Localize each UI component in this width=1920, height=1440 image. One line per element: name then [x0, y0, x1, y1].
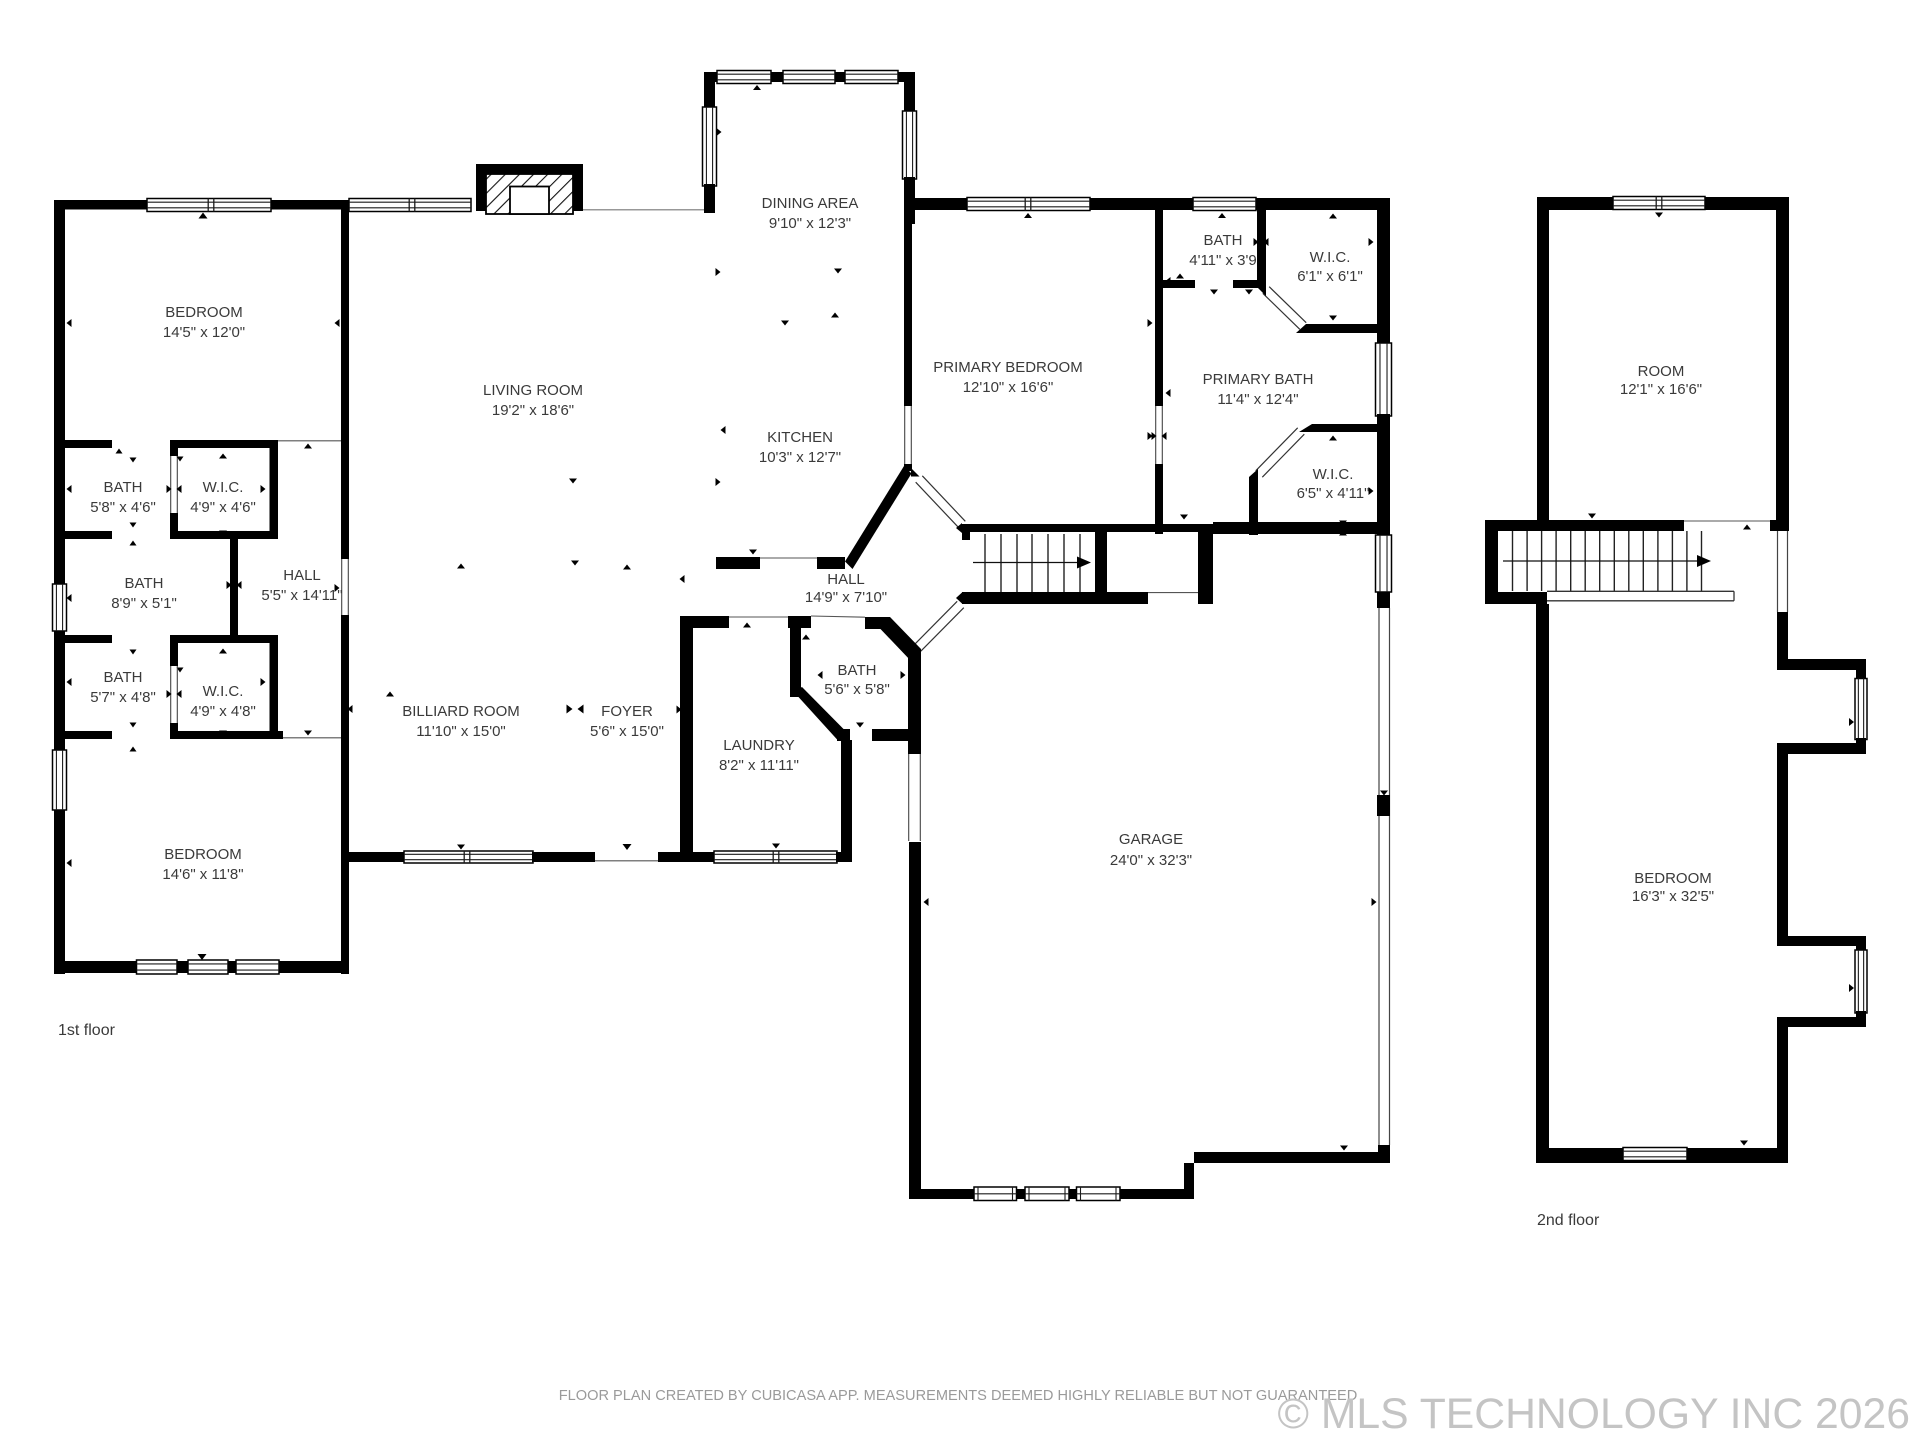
svg-text:5'8" x 4'6": 5'8" x 4'6" [90, 499, 156, 516]
svg-text:10'3" x 12'7": 10'3" x 12'7" [759, 449, 841, 466]
svg-text:1st floor: 1st floor [58, 1022, 116, 1039]
svg-text:HALL: HALL [827, 571, 865, 588]
svg-text:8'9" x 5'1": 8'9" x 5'1" [111, 595, 177, 612]
svg-text:BATH: BATH [1204, 232, 1243, 249]
svg-text:19'2" x 18'6": 19'2" x 18'6" [492, 402, 574, 419]
svg-text:LIVING ROOM: LIVING ROOM [483, 382, 583, 399]
svg-text:12'10" x 16'6": 12'10" x 16'6" [963, 379, 1054, 396]
svg-text:BILLIARD ROOM: BILLIARD ROOM [402, 703, 520, 720]
svg-text:FLOOR PLAN CREATED BY CUBICASA: FLOOR PLAN CREATED BY CUBICASA APP. MEAS… [559, 1388, 1358, 1404]
svg-text:BEDROOM: BEDROOM [1634, 870, 1712, 887]
svg-text:16'3" x 32'5": 16'3" x 32'5" [1632, 888, 1714, 905]
svg-text:W.I.C.: W.I.C. [203, 479, 244, 496]
svg-text:PRIMARY BATH: PRIMARY BATH [1203, 371, 1314, 388]
svg-text:9'10" x 12'3": 9'10" x 12'3" [769, 215, 851, 232]
svg-text:4'9" x 4'6": 4'9" x 4'6" [190, 499, 256, 516]
svg-text:2nd floor: 2nd floor [1537, 1212, 1600, 1229]
svg-text:FOYER: FOYER [601, 703, 653, 720]
svg-text:BEDROOM: BEDROOM [165, 304, 243, 321]
svg-text:14'6" x 11'8": 14'6" x 11'8" [162, 866, 243, 883]
svg-text:6'1" x 6'1": 6'1" x 6'1" [1297, 268, 1363, 285]
svg-text:6'5" x 4'11": 6'5" x 4'11" [1297, 485, 1370, 502]
svg-text:5'6" x 5'8": 5'6" x 5'8" [824, 681, 890, 698]
svg-text:11'10" x 15'0": 11'10" x 15'0" [416, 723, 506, 740]
svg-text:BATH: BATH [838, 662, 877, 679]
svg-text:4'11" x 3'9: 4'11" x 3'9 [1189, 252, 1257, 269]
svg-text:KITCHEN: KITCHEN [767, 429, 833, 446]
svg-text:W.I.C.: W.I.C. [1313, 466, 1354, 483]
svg-text:© MLS TECHNOLOGY INC 2026: © MLS TECHNOLOGY INC 2026 [1278, 1390, 1910, 1438]
svg-text:5'6" x 15'0": 5'6" x 15'0" [590, 723, 664, 740]
svg-text:W.I.C.: W.I.C. [203, 683, 244, 700]
svg-text:DINING AREA: DINING AREA [762, 195, 859, 212]
svg-text:BATH: BATH [104, 479, 143, 496]
svg-text:14'5" x 12'0": 14'5" x 12'0" [163, 324, 245, 341]
svg-text:W.I.C.: W.I.C. [1310, 249, 1351, 266]
svg-text:5'5" x 14'11": 5'5" x 14'11" [261, 587, 342, 604]
svg-text:4'9" x 4'8": 4'9" x 4'8" [190, 703, 256, 720]
svg-text:14'9" x 7'10": 14'9" x 7'10" [805, 589, 887, 606]
svg-text:PRIMARY BEDROOM: PRIMARY BEDROOM [933, 359, 1082, 376]
svg-text:12'1" x 16'6": 12'1" x 16'6" [1620, 381, 1702, 398]
svg-text:GARAGE: GARAGE [1119, 831, 1183, 848]
svg-text:BATH: BATH [104, 669, 143, 686]
svg-text:BEDROOM: BEDROOM [164, 846, 242, 863]
svg-text:HALL: HALL [283, 567, 321, 584]
svg-text:11'4" x 12'4": 11'4" x 12'4" [1217, 391, 1298, 408]
svg-text:5'7" x 4'8": 5'7" x 4'8" [90, 689, 156, 706]
svg-text:8'2" x 11'11": 8'2" x 11'11" [719, 757, 799, 774]
svg-text:LAUNDRY: LAUNDRY [723, 737, 794, 754]
svg-text:24'0" x 32'3": 24'0" x 32'3" [1110, 852, 1192, 869]
svg-text:BATH: BATH [125, 575, 164, 592]
svg-text:ROOM: ROOM [1638, 363, 1685, 380]
